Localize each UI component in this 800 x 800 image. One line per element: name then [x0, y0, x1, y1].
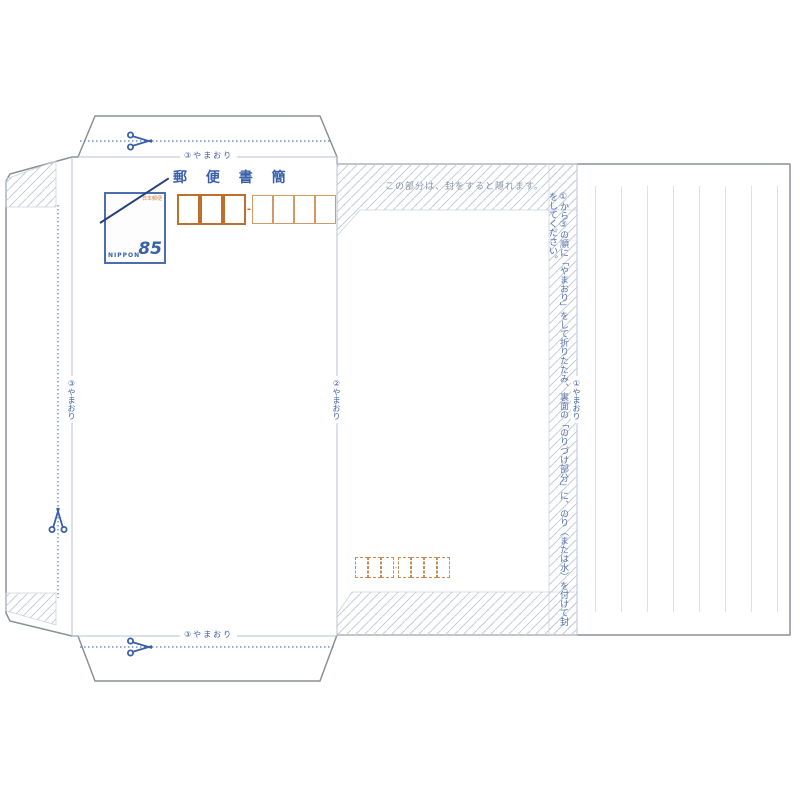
folding-instructions: ①から③の順に「やまおり」をして折りたたみ、裏面の「のりづけ部分」に、のり（また…	[546, 192, 568, 628]
sheet-title: 郵 便 書 簡	[173, 167, 293, 187]
postal-code-box	[424, 557, 437, 578]
fold-label-bottom: ③やまおり	[180, 630, 237, 640]
ruled-line	[751, 186, 752, 612]
fold-label-middle: ②やまおり	[331, 376, 342, 423]
fold-label-top: ③やまおり	[180, 151, 237, 161]
postal-code-box	[252, 195, 273, 224]
stamp-value: 85	[138, 241, 162, 258]
postal-code-box	[381, 557, 394, 578]
postal-code-box	[398, 557, 411, 578]
ruled-line	[621, 186, 622, 612]
postal-code-box	[294, 195, 315, 224]
postal-code-box	[411, 557, 424, 578]
ruled-line	[595, 186, 596, 612]
postal-code-box	[437, 557, 450, 578]
writing-ruled-lines	[595, 186, 800, 612]
stamp-issuer-label: 日本郵便	[142, 195, 162, 202]
ruled-line	[647, 186, 648, 612]
postal-code-box	[177, 194, 200, 225]
ruled-line	[673, 186, 674, 612]
postal-code-box	[368, 557, 381, 578]
postal-code-box	[355, 557, 368, 578]
postal-code-box	[273, 195, 294, 224]
ruled-line	[725, 186, 726, 612]
sender-postal-code-boxes: -	[355, 557, 450, 578]
fold-label-left: ③やまおり	[66, 376, 77, 423]
ruled-line	[699, 186, 700, 612]
postal-code-box	[200, 194, 223, 225]
postal-code-box	[315, 195, 336, 224]
fold-label-right: ①やまおり	[571, 376, 582, 423]
letter-sheet-template: 郵 便 書 簡 日本郵便 85 NIPPON - - この部分は、封をすると隠れ…	[0, 0, 800, 800]
stamp: 日本郵便 85 NIPPON	[104, 192, 166, 264]
stamp-country-label: NIPPON	[108, 252, 140, 259]
hidden-when-sealed-note: この部分は、封をすると隠れます。	[352, 179, 577, 192]
postal-code-box	[223, 194, 246, 225]
ruled-line	[777, 186, 778, 612]
recipient-postal-code-boxes: -	[177, 194, 336, 225]
